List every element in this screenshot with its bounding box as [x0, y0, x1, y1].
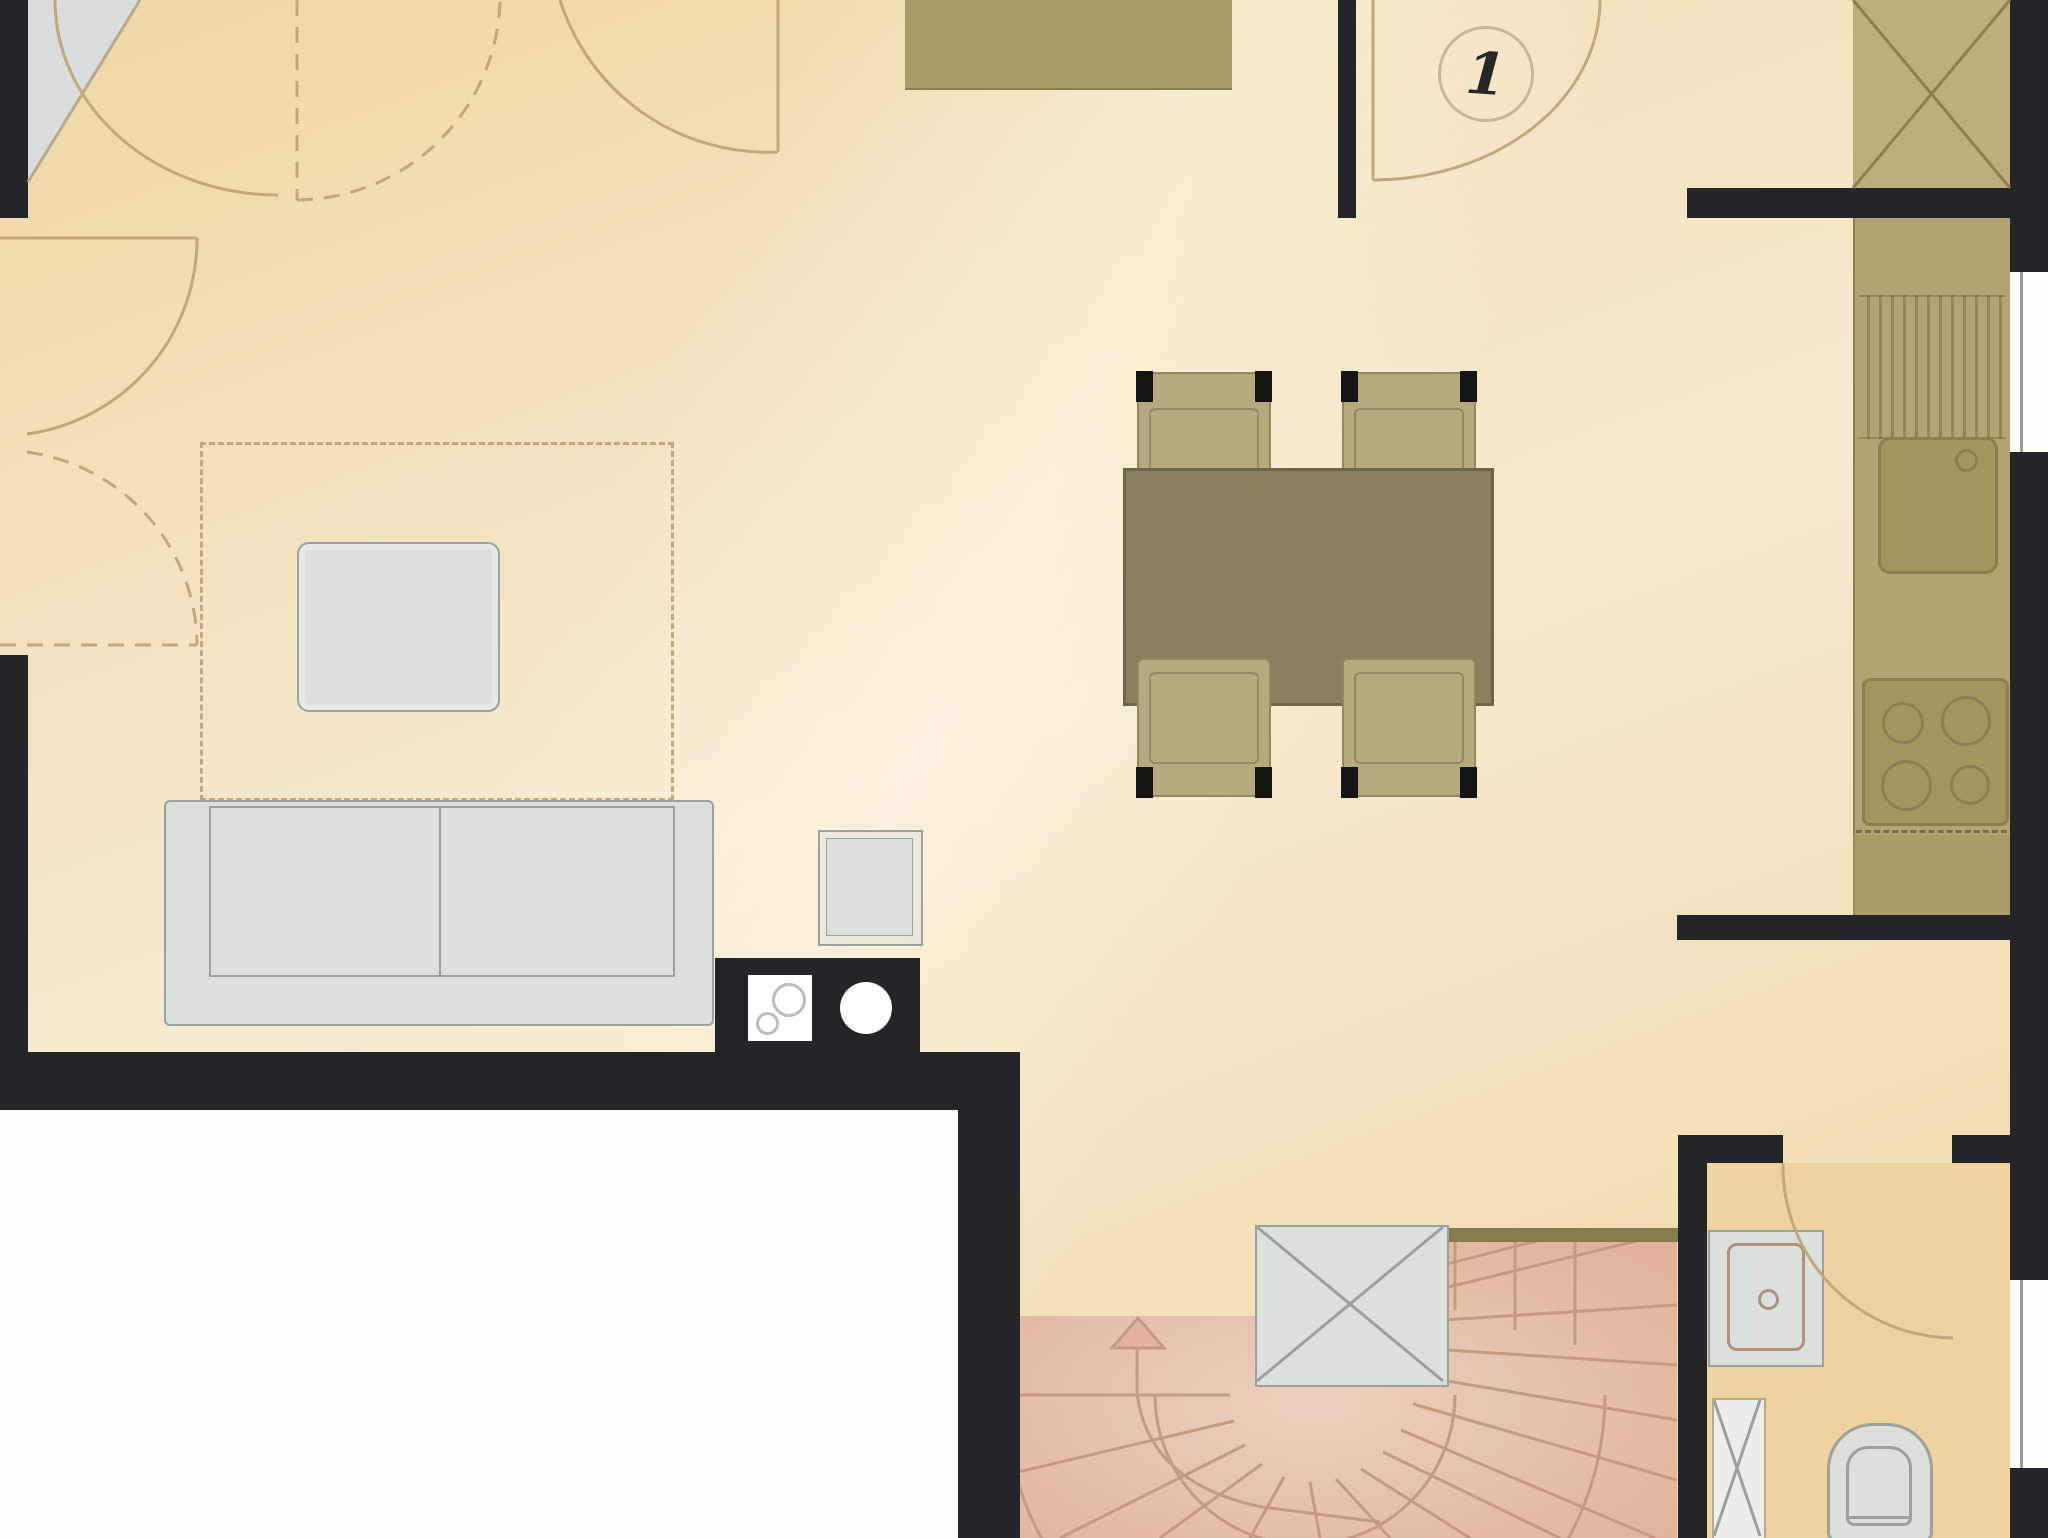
chair-cap: [1460, 767, 1477, 798]
chair-cap: [1341, 767, 1358, 798]
stair-landing: [1255, 1225, 1449, 1387]
stair-inner-arc: [1155, 1395, 1455, 1538]
appliance-dashed-line: [1856, 830, 2007, 833]
wall-right-bottom: [2010, 1468, 2048, 1538]
room-number-label: 1: [1463, 39, 1508, 110]
chair-cap: [1460, 371, 1477, 402]
wall-bottom-long: [0, 1052, 1020, 1110]
stair-direction-arrow: [1112, 1318, 1164, 1348]
chair-cap: [1136, 767, 1153, 798]
stair-outer-arc: [1005, 1395, 1605, 1538]
kitchen-counter-lower: [1853, 835, 2010, 915]
coffee-table: [297, 542, 500, 712]
door-swing-left-lower-dashed: [27, 452, 197, 645]
chair-seat: [1354, 672, 1464, 764]
dining-chair-bottom-right: [1342, 658, 1476, 797]
sofa-cushion-left: [209, 806, 443, 977]
exterior-wedge: [28, 0, 140, 182]
window-right-bottom: [2010, 1280, 2048, 1468]
wall-top-right: [1687, 188, 2048, 218]
door-swing-top-center: [560, 0, 778, 152]
toilet-seat: [1846, 1446, 1912, 1526]
sofa: [164, 800, 714, 1026]
burner-large-tr: [1941, 696, 1991, 746]
wall-left-top: [0, 0, 28, 218]
sideboard: [905, 0, 1232, 90]
sofa-cushion-right: [439, 806, 675, 977]
washbasin-drain: [1758, 1289, 1779, 1310]
wall-top-center: [1338, 0, 1356, 218]
floor-plan: 1: [0, 0, 2048, 1538]
kitchen-tall-cabinet: [1853, 0, 2010, 188]
window-right-top: [2010, 272, 2048, 452]
bath-cabinet-x: [1712, 1398, 1766, 1538]
door-swing-top-left: [55, 0, 278, 195]
burner-small-br: [1950, 765, 1990, 805]
wall-stair-left: [958, 1110, 1020, 1538]
door-swing-top-dashed: [297, 0, 500, 200]
burner-large-bl: [1881, 760, 1932, 811]
armchair-seat: [826, 838, 913, 936]
kitchen-sink: [1878, 437, 1998, 574]
dining-chair-bottom-left: [1137, 658, 1271, 797]
wall-right-upper: [2010, 0, 2048, 272]
wall-right-middle: [2010, 452, 2048, 940]
chair-cap: [1255, 371, 1272, 402]
chair-seat: [1149, 672, 1259, 764]
chair-cap: [1255, 767, 1272, 798]
outside-area-bottom-left: [0, 1110, 958, 1538]
faucet: [1955, 449, 1978, 472]
chimney-vent-circle: [840, 982, 892, 1034]
chair-cap: [1136, 371, 1153, 402]
window-right-top-frame: [2020, 272, 2023, 452]
chair-cap: [1341, 371, 1358, 402]
armchair: [818, 830, 923, 946]
drainboard-ribs: [1858, 295, 2006, 439]
window-right-bottom-frame: [2020, 1280, 2023, 1468]
burner-small-tl: [1882, 702, 1924, 744]
wall-left-lower: [0, 655, 28, 1055]
wall-right-lower: [2010, 940, 2048, 1280]
room-number-badge: 1: [1435, 23, 1537, 125]
door-swing-left-upper: [27, 238, 197, 434]
wall-bath-stub-right: [1952, 1135, 2010, 1163]
stair-edge-bar: [1445, 1228, 1678, 1242]
wall-kitchen-bar: [1677, 915, 2048, 940]
wall-bath-left: [1678, 1135, 1707, 1538]
toilet-tank-line: [1846, 1516, 1912, 1519]
chimney-flue-circle-small: [756, 1012, 779, 1035]
stove: [1862, 678, 2009, 826]
chimney-flue-circle-large: [772, 983, 806, 1017]
